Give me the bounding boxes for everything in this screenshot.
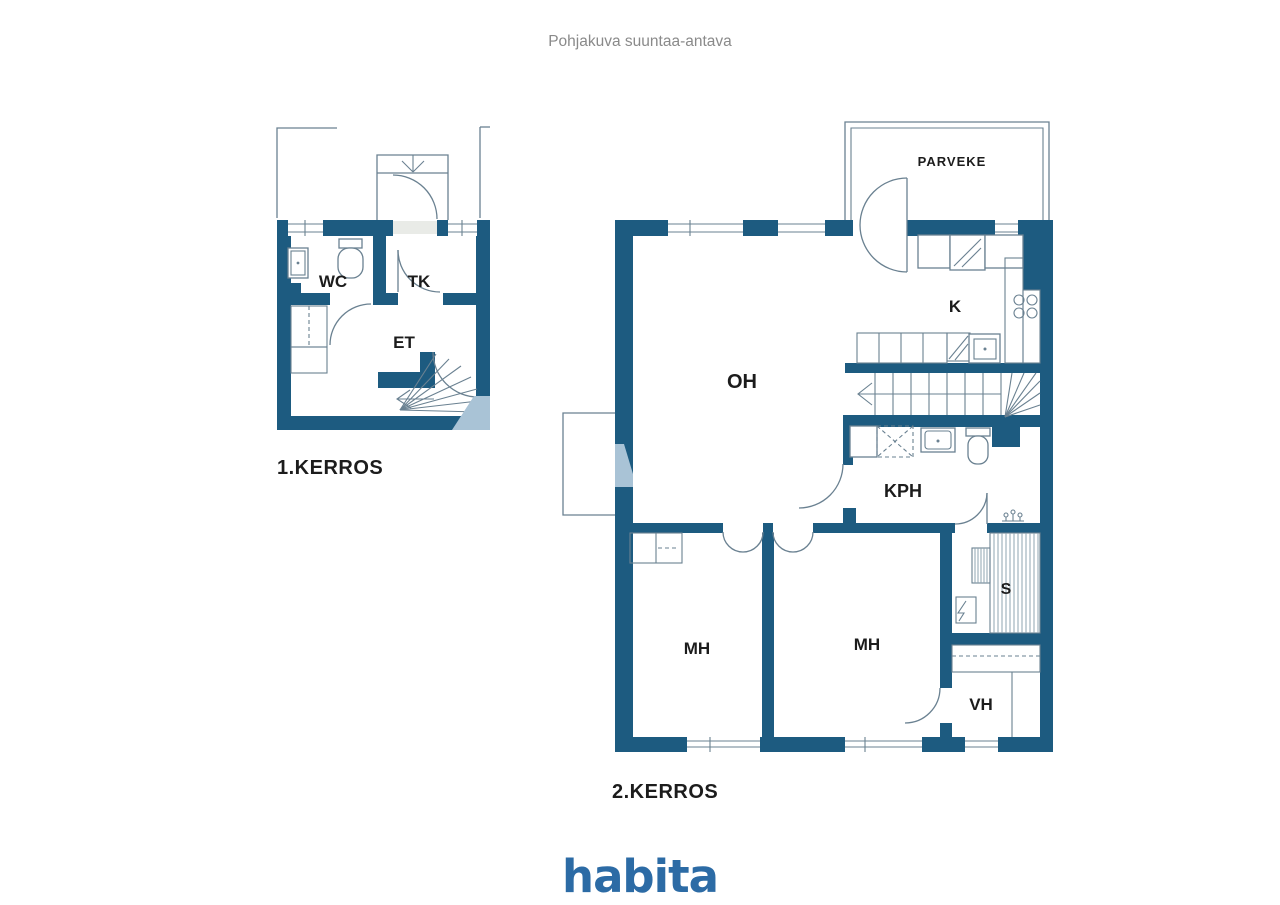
floor1-walls [277, 220, 490, 430]
floor1-plan: WC TK ET [277, 127, 490, 430]
room-label-mh2: MH [854, 635, 880, 654]
terrace-outline [563, 413, 615, 515]
room-label-kph: KPH [884, 481, 922, 501]
floor1-caption: 1.KERROS [277, 457, 383, 480]
kph-sink-icon [921, 428, 955, 452]
room-label-mh1: MH [684, 639, 710, 658]
hall-closet-icon [291, 306, 327, 373]
floor-plan-canvas: WC TK ET [0, 0, 1280, 905]
room-label-vh: VH [969, 695, 993, 714]
kph-door-icon [955, 493, 987, 524]
floor2-caption: 2.KERROS [612, 781, 718, 804]
room-label-wc: WC [319, 272, 347, 291]
bedroom-closet-icon [630, 533, 682, 563]
shower-icon [877, 426, 913, 457]
kph-toilet-icon [966, 428, 990, 464]
room-label-parveke: PARVEKE [918, 154, 987, 169]
room-label-et: ET [393, 333, 415, 352]
vh-door-icon [905, 688, 940, 723]
stairs-icon-floor2 [858, 373, 1040, 417]
floor1-canopy-lines [277, 127, 490, 220]
room-label-oh: OH [727, 371, 757, 393]
room-label-s: S [1001, 581, 1012, 598]
floor1-corner-cut [452, 396, 490, 430]
balcony-outline [845, 122, 1049, 220]
balcony-door-icon [860, 178, 907, 272]
room-label-tk: TK [408, 272, 431, 291]
wc-sink-icon [288, 248, 308, 278]
fridge-icon [918, 235, 1023, 270]
wc-door-icon [330, 304, 371, 345]
coat-hooks-icon [1002, 510, 1024, 521]
habita-logo: habita [0, 850, 1280, 903]
oh-door-icon [799, 464, 843, 508]
sauna-heater-icon [956, 597, 976, 623]
entrance-door-icon [393, 175, 437, 234]
floor-plan-page: Pohjakuva suuntaa-antava [0, 0, 1280, 905]
vh-shelves-icon [952, 645, 1040, 737]
washing-machine-icon [850, 426, 877, 457]
floor2-plan: PARVEKE OH K KPH MH MH S VH [563, 122, 1053, 752]
room-label-k: K [949, 297, 962, 316]
